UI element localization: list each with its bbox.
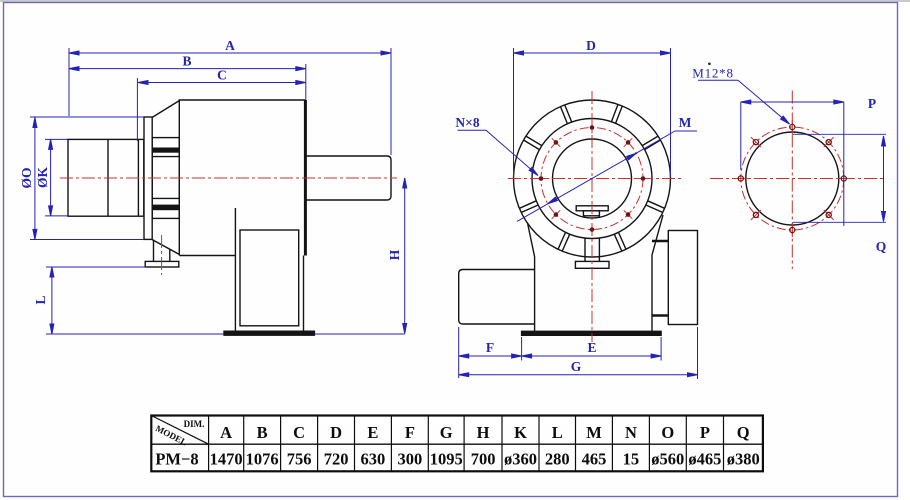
svg-text:M12*8: M12*8 bbox=[692, 66, 734, 81]
svg-text:G: G bbox=[571, 359, 582, 374]
svg-text:Q: Q bbox=[737, 423, 750, 442]
svg-text:1076: 1076 bbox=[246, 450, 279, 469]
svg-text:D: D bbox=[586, 38, 596, 53]
svg-text:E: E bbox=[587, 340, 596, 355]
svg-text:ø360: ø360 bbox=[504, 450, 537, 469]
svg-text:1470: 1470 bbox=[210, 450, 243, 469]
svg-text:P: P bbox=[700, 423, 710, 442]
svg-text:ø380: ø380 bbox=[727, 450, 760, 469]
svg-text:N: N bbox=[625, 423, 637, 442]
svg-text:G: G bbox=[440, 423, 453, 442]
svg-text:ØK: ØK bbox=[35, 167, 50, 189]
svg-text:Q: Q bbox=[876, 239, 887, 254]
svg-text:C: C bbox=[293, 423, 305, 442]
svg-text:C: C bbox=[217, 68, 227, 83]
svg-text:H: H bbox=[387, 249, 402, 260]
svg-text:P: P bbox=[868, 96, 876, 111]
svg-text:700: 700 bbox=[471, 450, 496, 469]
svg-text:B: B bbox=[182, 54, 191, 69]
svg-text:ØO: ØO bbox=[19, 167, 34, 188]
svg-text:D: D bbox=[330, 423, 342, 442]
svg-text:B: B bbox=[257, 423, 268, 442]
svg-text:15: 15 bbox=[623, 450, 640, 469]
svg-text:PM−8: PM−8 bbox=[155, 450, 198, 469]
svg-text:630: 630 bbox=[361, 450, 386, 469]
svg-text:A: A bbox=[220, 423, 232, 442]
svg-text:280: 280 bbox=[545, 450, 570, 469]
svg-text:H: H bbox=[477, 423, 490, 442]
svg-text:1095: 1095 bbox=[430, 450, 463, 469]
svg-text:K: K bbox=[514, 423, 527, 442]
svg-text:O: O bbox=[661, 423, 674, 442]
svg-text:E: E bbox=[367, 423, 378, 442]
svg-text:M: M bbox=[679, 115, 692, 130]
svg-text:300: 300 bbox=[398, 450, 423, 469]
svg-text:L: L bbox=[552, 423, 563, 442]
svg-text:720: 720 bbox=[324, 450, 349, 469]
svg-text:F: F bbox=[405, 423, 415, 442]
svg-text:L: L bbox=[33, 295, 48, 304]
svg-text:ø465: ø465 bbox=[688, 450, 721, 469]
svg-text:N×8: N×8 bbox=[455, 115, 479, 130]
svg-text:A: A bbox=[225, 38, 235, 53]
svg-text:M: M bbox=[586, 423, 602, 442]
svg-text:756: 756 bbox=[287, 450, 312, 469]
svg-text:DIM.: DIM. bbox=[184, 419, 205, 429]
svg-text:ø560: ø560 bbox=[651, 450, 684, 469]
svg-text:F: F bbox=[486, 340, 494, 355]
svg-text:465: 465 bbox=[582, 450, 607, 469]
